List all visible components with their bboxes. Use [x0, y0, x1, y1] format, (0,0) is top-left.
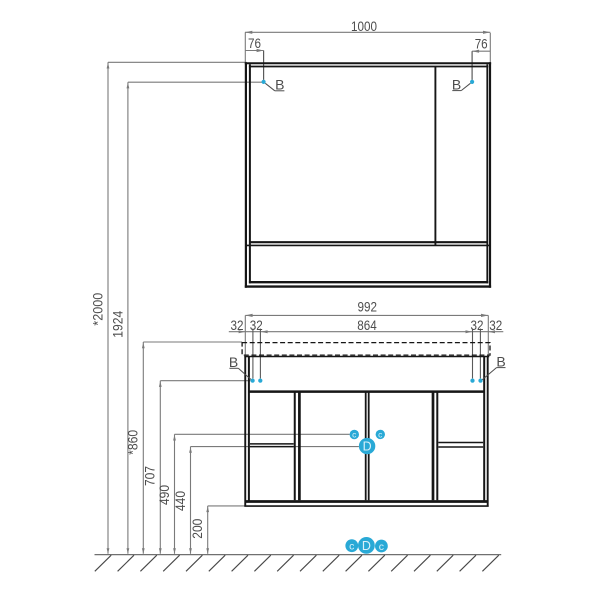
- svg-text:32: 32: [250, 318, 263, 333]
- svg-text:76: 76: [248, 36, 261, 51]
- svg-text:864: 864: [357, 318, 377, 333]
- svg-text:D: D: [363, 440, 372, 454]
- svg-text:c: c: [349, 541, 354, 553]
- svg-text:76: 76: [475, 37, 488, 52]
- svg-text:32: 32: [471, 318, 484, 333]
- svg-text:c: c: [352, 430, 357, 440]
- svg-text:1924: 1924: [110, 310, 125, 337]
- svg-text:32: 32: [489, 318, 502, 333]
- svg-text:B: B: [275, 77, 284, 93]
- svg-text:D: D: [362, 539, 371, 553]
- svg-text:440: 440: [173, 491, 188, 511]
- svg-text:B: B: [496, 353, 505, 369]
- svg-text:B: B: [452, 76, 461, 92]
- svg-text:B: B: [229, 354, 238, 370]
- svg-text:707: 707: [143, 466, 158, 486]
- svg-text:200: 200: [190, 519, 205, 539]
- svg-text:c: c: [379, 541, 384, 553]
- svg-text:490: 490: [157, 485, 172, 505]
- svg-text:1000: 1000: [351, 19, 377, 34]
- svg-text:992: 992: [358, 300, 378, 315]
- svg-text:32: 32: [231, 318, 244, 333]
- svg-text:*2000: *2000: [90, 293, 105, 326]
- svg-text:*860: *860: [126, 430, 141, 455]
- svg-text:c: c: [378, 430, 383, 440]
